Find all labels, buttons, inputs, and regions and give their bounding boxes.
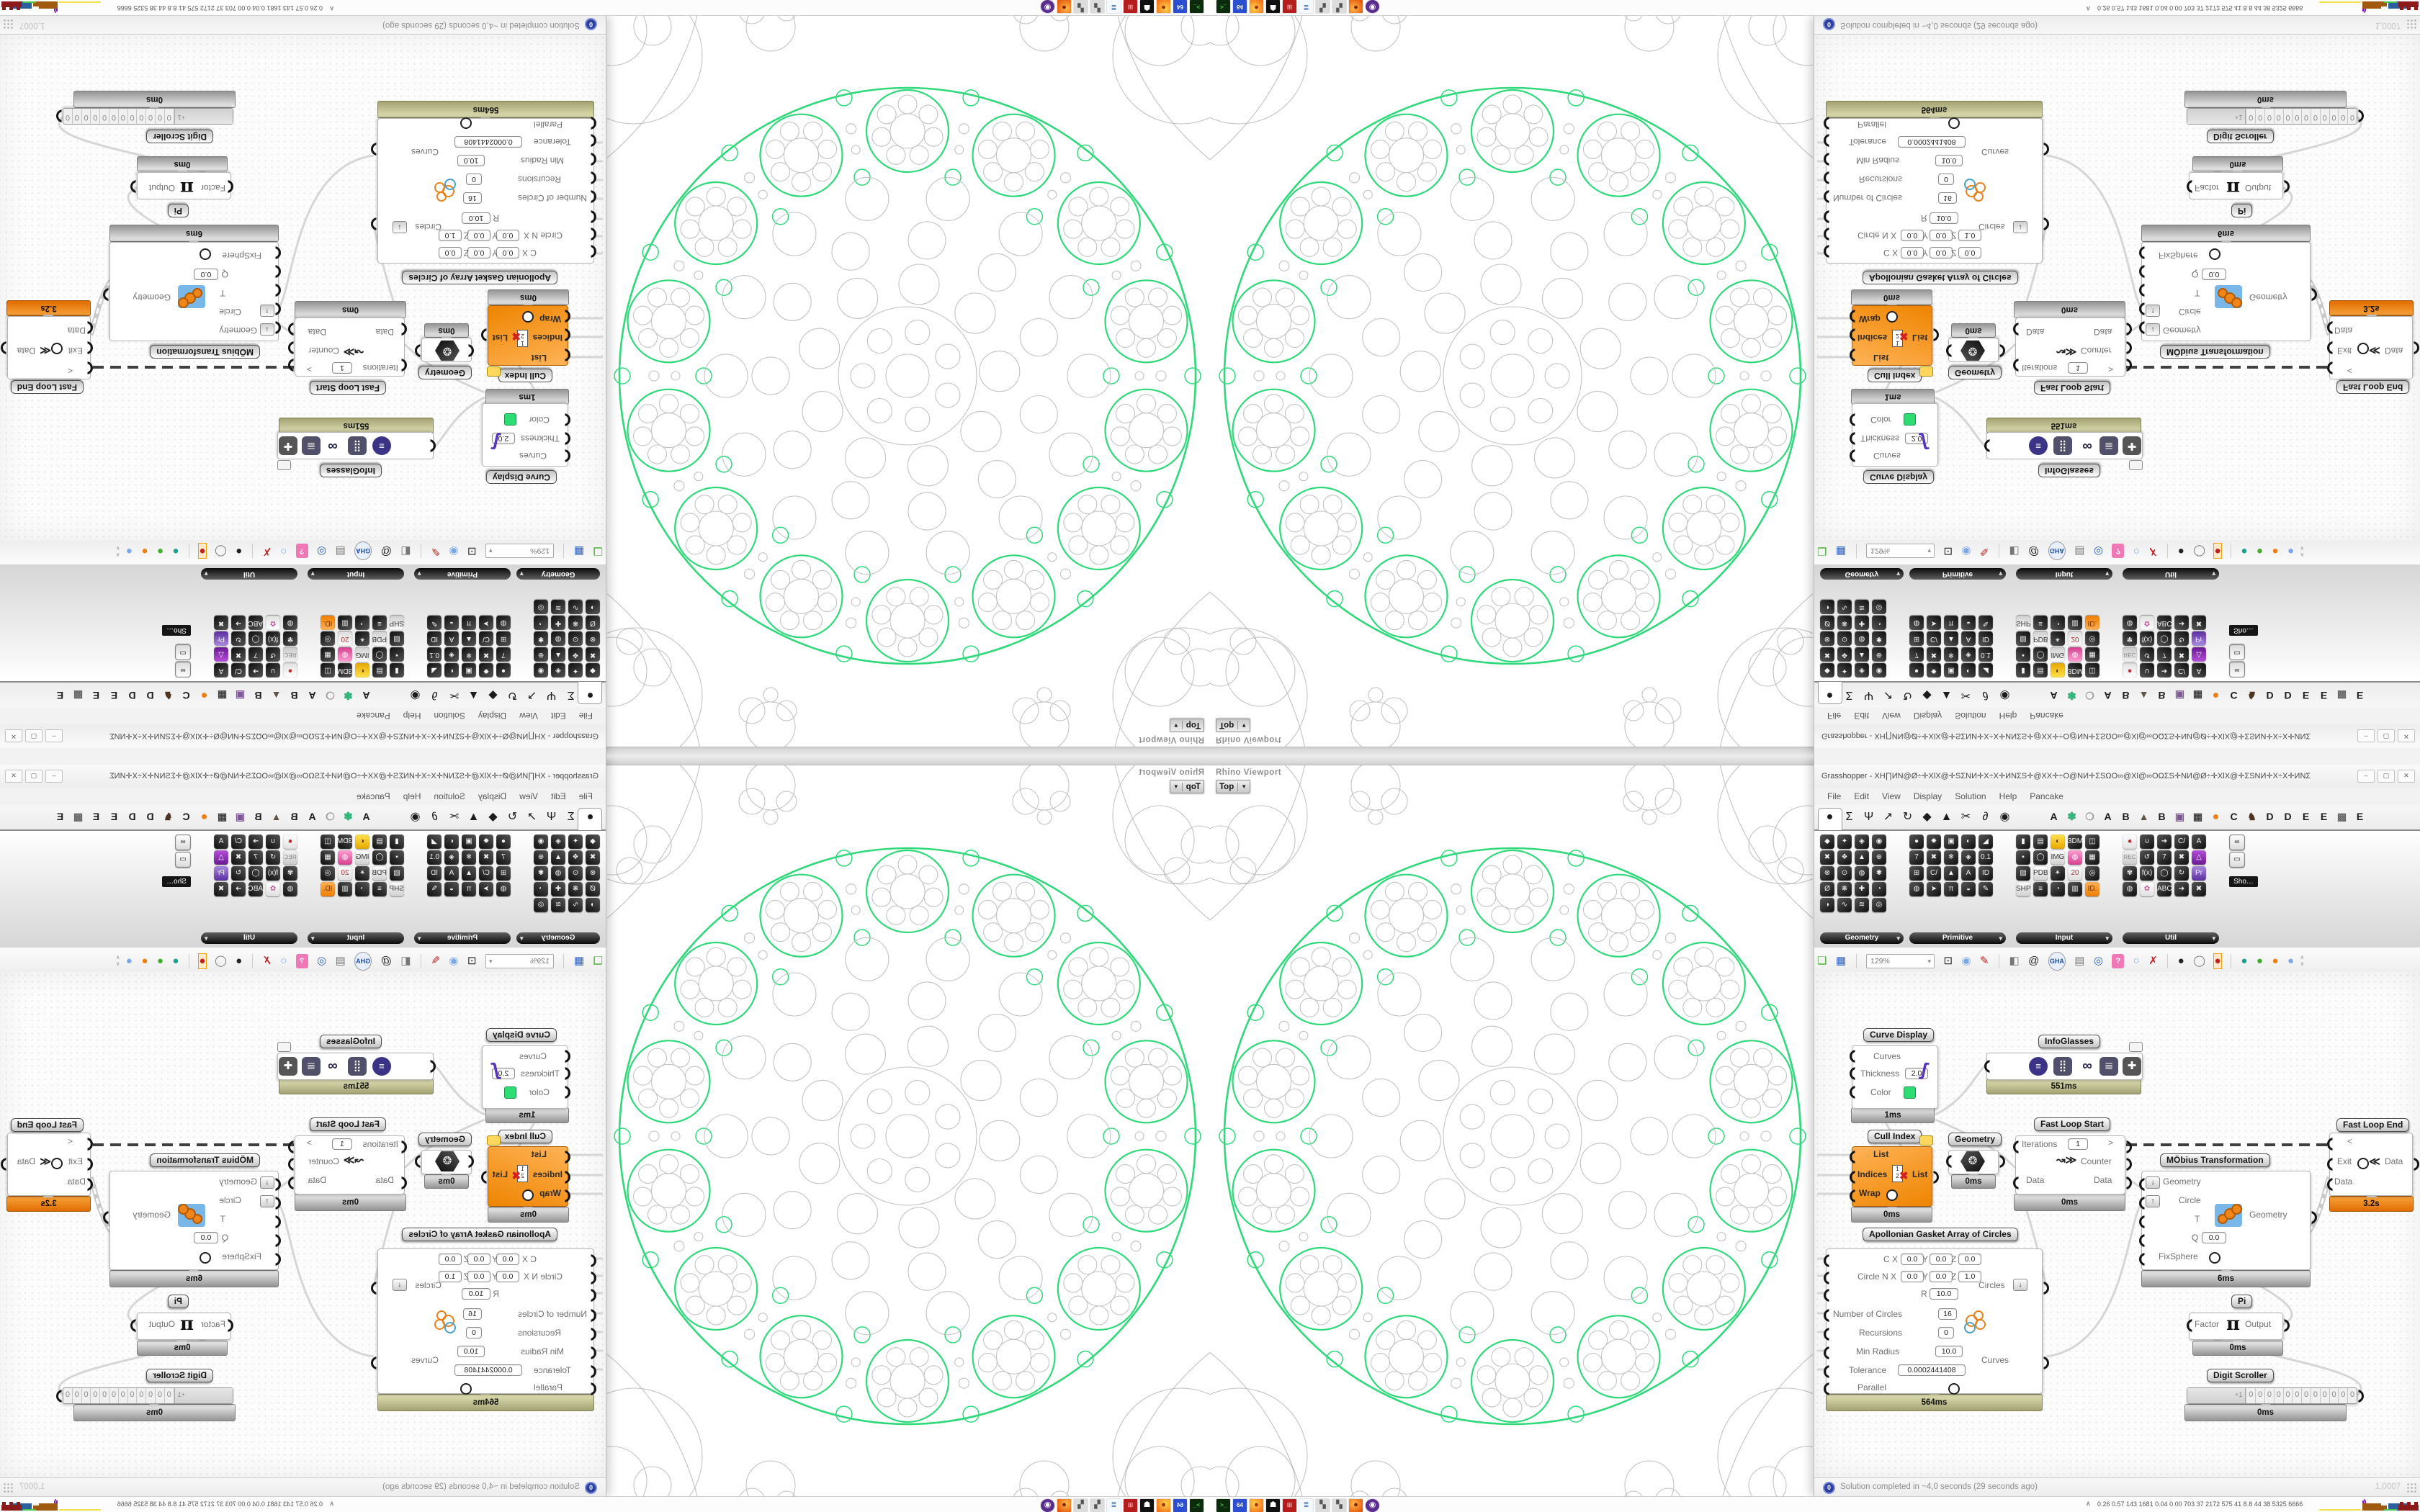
port-out[interactable] bbox=[2356, 111, 2363, 122]
min-radius-value[interactable]: 10.0 bbox=[457, 155, 485, 166]
port-out[interactable] bbox=[372, 219, 379, 230]
save-file-button[interactable]: ▦ bbox=[1836, 544, 1846, 558]
palette-group-label[interactable]: Primitive bbox=[414, 568, 511, 580]
preview-wire-button[interactable]: ◯ bbox=[2193, 544, 2205, 558]
component-icon[interactable]: ↻ bbox=[2174, 631, 2189, 646]
component-icon[interactable]: ▲ bbox=[1944, 631, 1958, 646]
tab-addon[interactable]: A bbox=[359, 811, 374, 822]
tab-icon[interactable]: ◉ bbox=[1995, 688, 2015, 703]
tab-icon[interactable]: ↗ bbox=[1878, 809, 1898, 824]
group-balloon-blue[interactable]: ● bbox=[126, 954, 133, 968]
component-icon[interactable]: ✖ bbox=[2174, 647, 2189, 662]
menu-item[interactable]: Help bbox=[1999, 707, 2017, 724]
infoglasses-grid-icon[interactable]: ⣿ bbox=[2053, 1057, 2072, 1076]
component-icon[interactable]: ◎ bbox=[1872, 600, 1886, 614]
component-icon[interactable]: π bbox=[1944, 616, 1958, 630]
group-balloon-green[interactable]: ● bbox=[157, 544, 163, 558]
port-in[interactable] bbox=[276, 1178, 283, 1189]
tab-addon[interactable]: A bbox=[305, 811, 320, 822]
q-value[interactable]: 0.0 bbox=[2202, 269, 2226, 280]
tab-addon[interactable]: ▣ bbox=[233, 811, 248, 823]
n-y[interactable]: 0.0 bbox=[467, 1271, 490, 1282]
menu-item[interactable]: Help bbox=[403, 707, 421, 724]
component-icon[interactable]: ❋ bbox=[1837, 616, 1852, 630]
component-icon[interactable]: ✚ bbox=[1855, 616, 1869, 630]
balloon-button[interactable]: ○ bbox=[2133, 954, 2140, 968]
component-icon[interactable]: SHP bbox=[390, 882, 404, 896]
component-icon[interactable]: ▲ bbox=[462, 631, 476, 646]
component-icon[interactable]: ▮ bbox=[2016, 834, 2030, 849]
port-in[interactable] bbox=[1821, 1254, 1829, 1266]
fixsphere-toggle[interactable] bbox=[200, 248, 211, 260]
tab-icon[interactable]: ↻ bbox=[503, 809, 522, 824]
port-in[interactable] bbox=[2137, 1197, 2144, 1208]
tab-icon[interactable]: Σ bbox=[1839, 811, 1859, 824]
close-button[interactable]: ✕ bbox=[5, 729, 22, 742]
component-icon[interactable]: ✴ bbox=[355, 631, 369, 646]
open-file-button[interactable]: ❏ bbox=[1817, 544, 1827, 558]
zoom-level-dropdown[interactable]: 129% bbox=[1866, 954, 1935, 968]
infoglasses-goggles-icon[interactable]: ∞ bbox=[323, 1057, 342, 1076]
component-icon[interactable]: A bbox=[1961, 631, 1976, 646]
component-icon[interactable]: ✚ bbox=[1855, 882, 1869, 896]
node-infoglasses[interactable]: ≡ ⣿ ∞ ≣ ✚ bbox=[1986, 432, 2143, 459]
port-in[interactable] bbox=[276, 266, 283, 278]
zoom-extents-button[interactable]: ⊡ bbox=[467, 544, 477, 558]
parallel-toggle[interactable] bbox=[460, 117, 472, 129]
rhino-viewport[interactable]: .gg{fill:none;stroke:#c3c3c3;stroke-widt… bbox=[1210, 765, 1813, 1496]
component-icon[interactable]: ✦ bbox=[568, 663, 583, 678]
component-icon[interactable]: ✱ bbox=[534, 631, 548, 646]
wrap-toggle[interactable] bbox=[1886, 311, 1898, 323]
component-icon[interactable]: ▮ bbox=[390, 663, 404, 678]
digit-cell[interactable]: 0 bbox=[2301, 1388, 2311, 1403]
component-icon[interactable]: ◈ bbox=[1855, 663, 1869, 678]
r-value[interactable]: 10.0 bbox=[462, 212, 490, 224]
digit-cell[interactable]: 0 bbox=[2311, 1388, 2320, 1403]
exit-toggle[interactable] bbox=[51, 343, 63, 354]
fixsphere-toggle[interactable] bbox=[2209, 248, 2220, 260]
infoglasses-puzzle-icon[interactable]: ✚ bbox=[2123, 436, 2141, 455]
component-icon[interactable]: ▪ bbox=[2016, 647, 2030, 662]
tab-addon[interactable]: ▩ bbox=[2334, 811, 2349, 823]
component-icon[interactable]: ◔ bbox=[355, 616, 369, 630]
color-swatch[interactable] bbox=[1904, 413, 1916, 426]
component-icon[interactable]: ≡ bbox=[2033, 882, 2048, 896]
component-icon[interactable]: 0.1 bbox=[1978, 850, 1993, 865]
component-icon[interactable]: ⊙ bbox=[568, 631, 583, 646]
digit-cell[interactable]: 0 bbox=[2274, 109, 2283, 124]
tab-addon[interactable]: B bbox=[251, 811, 266, 822]
preview-wire-button[interactable]: ◯ bbox=[215, 954, 227, 968]
menu-item[interactable]: File bbox=[579, 788, 593, 805]
rhino-viewport[interactable]: .gg{fill:none;stroke:#c3c3c3;stroke-widt… bbox=[1210, 16, 1813, 747]
component-icon[interactable]: PDB bbox=[372, 631, 387, 646]
tab-icon[interactable]: Ψ bbox=[1859, 688, 1878, 701]
group-balloon-teal[interactable]: ● bbox=[173, 544, 179, 558]
component-icon[interactable]: ● bbox=[496, 834, 511, 849]
flatten-icon[interactable]: ↓ bbox=[393, 221, 407, 233]
infoglasses-puzzle-icon[interactable]: ✚ bbox=[279, 1057, 297, 1076]
infoglasses-lines-icon[interactable]: ≡ bbox=[372, 1057, 391, 1076]
component-icon[interactable]: ◉ bbox=[534, 663, 548, 678]
port-out[interactable] bbox=[482, 330, 489, 341]
node-label-fast-loop-end[interactable]: Fast Loop End bbox=[2336, 1118, 2409, 1132]
port-in[interactable] bbox=[591, 1272, 599, 1283]
component-icon[interactable]: C/ bbox=[231, 834, 246, 849]
component-icon[interactable]: ◔ bbox=[1872, 882, 1886, 896]
taskbar-terminal-icon[interactable]: >_ bbox=[1189, 1498, 1204, 1512]
component-icon[interactable]: ✚ bbox=[551, 882, 565, 896]
n-x[interactable]: 0.0 bbox=[1901, 230, 1924, 241]
maximize-button[interactable]: ▢ bbox=[25, 729, 42, 742]
tab-addon[interactable]: ✽ bbox=[341, 689, 356, 702]
component-icon[interactable]: ◍ bbox=[2123, 616, 2137, 630]
tab-icon[interactable]: ● bbox=[1820, 811, 1839, 824]
palette-group-label[interactable]: Input bbox=[2016, 568, 2112, 580]
component-icon[interactable]: A bbox=[214, 834, 228, 849]
preview-eye-button[interactable]: ◉ bbox=[449, 954, 458, 968]
preview-off-button[interactable]: ● bbox=[236, 544, 242, 558]
document-button[interactable]: ▤ bbox=[2074, 544, 2084, 558]
node-label-fast-loop-start[interactable]: Fast Loop Start bbox=[310, 381, 386, 395]
taskbar-maze-icon[interactable]: ▚ bbox=[1332, 1498, 1347, 1512]
resize-grip[interactable] bbox=[4, 1482, 14, 1493]
recursions-value[interactable]: 0 bbox=[466, 1327, 482, 1338]
component-icon[interactable]: ➤ bbox=[1927, 882, 1941, 896]
c-y[interactable]: 0.0 bbox=[467, 1254, 490, 1265]
component-icon[interactable]: 20 bbox=[338, 866, 352, 881]
palette-group-label[interactable]: Geometry bbox=[1820, 568, 1904, 580]
node-label-cull-index[interactable]: Cull Index bbox=[498, 1130, 552, 1143]
tab-addon[interactable]: ▣ bbox=[2172, 811, 2187, 823]
exit-toggle[interactable] bbox=[2357, 1158, 2369, 1169]
component-icon[interactable]: Ø bbox=[586, 616, 600, 630]
component-icon[interactable]: ▣ bbox=[462, 834, 476, 849]
close-button[interactable]: ✕ bbox=[2398, 729, 2415, 742]
palette-group-label[interactable]: Sho… bbox=[2229, 625, 2258, 636]
component-icon[interactable]: ID. bbox=[321, 882, 335, 896]
taskbar-maze-icon[interactable]: ▚ bbox=[1332, 0, 1347, 14]
tolerance-value[interactable]: 0.0002441408 bbox=[1898, 136, 1966, 148]
wire-display-button[interactable]: ✗ bbox=[2148, 954, 2158, 968]
node-label-apollonian[interactable]: Apollonian Gasket Array of Circles bbox=[402, 1228, 557, 1241]
digit-cell[interactable]: 0 bbox=[91, 109, 100, 124]
port-in[interactable] bbox=[88, 343, 95, 354]
tab-addon[interactable]: ♞ bbox=[161, 689, 176, 701]
menu-item[interactable]: View bbox=[1882, 788, 1901, 805]
port-out[interactable] bbox=[2124, 1158, 2131, 1169]
zoom-level-dropdown[interactable]: 129% bbox=[485, 544, 554, 558]
group-balloon-blue[interactable]: ● bbox=[2287, 544, 2294, 558]
port-out[interactable] bbox=[416, 346, 423, 357]
exposure-button[interactable]: ◧ bbox=[2009, 544, 2020, 558]
tab-addon[interactable]: ▦ bbox=[2190, 689, 2205, 701]
c-z[interactable]: 0.0 bbox=[1958, 1254, 1981, 1265]
component-icon[interactable]: 20 bbox=[2068, 631, 2082, 646]
port-in[interactable] bbox=[1821, 1289, 1829, 1300]
component-icon[interactable]: ▥ bbox=[2068, 616, 2082, 630]
port-in[interactable] bbox=[591, 192, 599, 203]
node-label-apollonian[interactable]: Apollonian Gasket Array of Circles bbox=[402, 271, 557, 284]
digit-cell[interactable]: 0 bbox=[128, 1388, 138, 1403]
component-icon[interactable]: ◑ bbox=[1820, 898, 1834, 912]
port-out[interactable] bbox=[2124, 1140, 2131, 1152]
menu-item[interactable]: Solution bbox=[434, 788, 465, 805]
port-in[interactable] bbox=[88, 1178, 95, 1189]
menu-item[interactable]: File bbox=[579, 707, 593, 724]
component-icon[interactable]: ◢ bbox=[1978, 834, 1993, 849]
component-icon[interactable]: ▥ bbox=[2068, 882, 2082, 896]
digit-cell[interactable]: 0 bbox=[2292, 1388, 2301, 1403]
component-icon[interactable]: 0.1 bbox=[427, 647, 442, 662]
digit-cell[interactable]: 0 bbox=[2338, 1388, 2347, 1403]
group-balloon-teal[interactable]: ● bbox=[2241, 544, 2247, 558]
tab-addon[interactable]: ● bbox=[197, 811, 212, 824]
component-icon[interactable]: ◫ bbox=[2085, 834, 2099, 849]
taskbar-maze-icon[interactable]: ▚ bbox=[1073, 0, 1088, 14]
taskbar-owl-icon[interactable]: ◉ bbox=[1040, 1498, 1055, 1512]
iterations-value[interactable]: 1 bbox=[332, 362, 352, 374]
component-icon[interactable]: ♠ bbox=[283, 663, 297, 678]
port-in[interactable] bbox=[565, 311, 573, 323]
component-icon[interactable]: ✖ bbox=[1820, 850, 1834, 865]
port-in[interactable] bbox=[591, 246, 599, 258]
component-icon[interactable]: PDB bbox=[2033, 866, 2048, 881]
digit-cell[interactable]: 0 bbox=[2301, 109, 2311, 124]
menu-item[interactable]: Edit bbox=[1854, 788, 1869, 805]
infoglasses-lines-icon[interactable]: ≡ bbox=[2029, 1057, 2048, 1076]
component-icon[interactable]: ▲ bbox=[1944, 866, 1958, 881]
port-in[interactable] bbox=[2325, 1138, 2332, 1149]
component-icon[interactable]: ↺ bbox=[2140, 850, 2154, 865]
node-label-pi[interactable]: Pi bbox=[2231, 204, 2252, 217]
menu-item[interactable]: Edit bbox=[551, 707, 566, 724]
component-icon[interactable]: ▲ bbox=[551, 647, 565, 662]
goggles-icon[interactable]: ∞ bbox=[2229, 662, 2245, 678]
tab-addon[interactable]: E bbox=[2298, 690, 2313, 701]
help-button[interactable]: ? bbox=[296, 954, 308, 968]
component-icon[interactable]: △ bbox=[214, 850, 228, 865]
component-icon[interactable]: ⊞ bbox=[1909, 866, 1924, 881]
sketch-tool-button[interactable]: ✎ bbox=[431, 954, 440, 968]
component-icon[interactable]: ✸ bbox=[479, 663, 493, 678]
component-icon[interactable]: ✿ bbox=[2140, 616, 2154, 630]
digit-cell[interactable]: 0 bbox=[82, 1388, 91, 1403]
c-z[interactable]: 0.0 bbox=[439, 247, 462, 258]
tab-addon[interactable]: B bbox=[287, 690, 302, 701]
port-out[interactable] bbox=[2041, 1282, 2048, 1293]
tab-addon[interactable]: E bbox=[107, 690, 122, 701]
port-in[interactable] bbox=[88, 1158, 95, 1169]
node-digit-scroller[interactable]: +1 000000000000 bbox=[2187, 1387, 2357, 1404]
node-label-moebius[interactable]: MÖbius Transformation bbox=[2160, 345, 2270, 359]
graft-icon[interactable]: ↑ bbox=[2146, 305, 2160, 317]
component-icon[interactable]: ➔ bbox=[231, 616, 246, 630]
component-icon[interactable]: ◐ bbox=[355, 663, 369, 678]
port-out[interactable] bbox=[2411, 343, 2419, 354]
save-file-button[interactable]: ▦ bbox=[574, 544, 584, 558]
tab-addon[interactable]: B bbox=[251, 690, 266, 701]
menu-item[interactable]: Help bbox=[1999, 788, 2017, 805]
component-icon[interactable]: ◍ bbox=[338, 647, 352, 662]
component-icon[interactable]: ◯ bbox=[372, 647, 387, 662]
component-icon[interactable]: A bbox=[444, 866, 459, 881]
node-label-cull-index[interactable]: Cull Index bbox=[1868, 1130, 1922, 1143]
grasshopper-titlebar[interactable]: Grasshopper - XH∏ИN@Ø÷✛XlX@✛SΣNИ✛X÷X✛ИNΣ… bbox=[1814, 724, 2420, 747]
component-icon[interactable]: ◔ bbox=[2051, 616, 2065, 630]
port-in[interactable] bbox=[2137, 1178, 2144, 1189]
port-in[interactable] bbox=[2325, 363, 2332, 374]
save-file-button[interactable]: ▦ bbox=[1836, 954, 1846, 968]
component-icon[interactable]: ↻ bbox=[2174, 866, 2189, 881]
digit-cell[interactable]: 0 bbox=[137, 1388, 146, 1403]
component-icon[interactable]: ∪ bbox=[266, 834, 280, 849]
taskbar-maze-icon[interactable]: ▚ bbox=[1090, 1498, 1105, 1512]
zoom-extents-button[interactable]: ⊡ bbox=[467, 954, 477, 968]
component-icon[interactable]: ◍ bbox=[551, 631, 565, 646]
menu-item[interactable]: Display bbox=[478, 707, 506, 724]
flatten-icon[interactable]: ↓ bbox=[393, 1279, 407, 1291]
component-icon[interactable]: ▨ bbox=[2016, 866, 2030, 881]
port-in[interactable] bbox=[88, 1138, 95, 1149]
port-in[interactable] bbox=[228, 1319, 236, 1331]
palette-group-label[interactable]: Geometry bbox=[1820, 932, 1904, 944]
port-in[interactable] bbox=[565, 1151, 573, 1162]
taskbar-terminal-icon[interactable]: >_ bbox=[1189, 0, 1204, 14]
component-icon[interactable]: ➜ bbox=[248, 663, 263, 678]
c-y[interactable]: 0.0 bbox=[1930, 247, 1953, 258]
taskbar-maze-icon[interactable]: ▚ bbox=[1315, 0, 1330, 14]
tab-icon[interactable]: ▲ bbox=[1937, 688, 1956, 701]
port-in[interactable] bbox=[591, 1382, 599, 1394]
tab-addon[interactable]: ✽ bbox=[341, 810, 356, 823]
wrap-toggle[interactable] bbox=[1886, 1189, 1898, 1201]
port-in[interactable] bbox=[1821, 1328, 1829, 1339]
exposure-button[interactable]: ◧ bbox=[2009, 954, 2020, 968]
help-button[interactable]: ? bbox=[296, 544, 308, 558]
zoom-extents-button[interactable]: ⊡ bbox=[1943, 544, 1953, 558]
tab-icon[interactable]: ✂ bbox=[1956, 688, 1976, 703]
preview-off-button[interactable]: ● bbox=[236, 954, 242, 968]
q-value[interactable]: 0.0 bbox=[194, 1232, 218, 1243]
component-icon[interactable]: ✾ bbox=[283, 866, 297, 881]
component-icon[interactable]: ◆ bbox=[1820, 834, 1834, 849]
node-label-fast-loop-end[interactable]: Fast Loop End bbox=[11, 380, 84, 394]
node-label-infoglasses[interactable]: InfoGlasses bbox=[320, 1035, 382, 1048]
component-icon[interactable]: ◍ bbox=[2068, 647, 2082, 662]
group-balloon-green[interactable]: ● bbox=[157, 954, 163, 968]
tab-icon[interactable]: ◆ bbox=[1917, 688, 1937, 703]
balloon-button[interactable]: ○ bbox=[2133, 544, 2140, 558]
tab-addon[interactable]: C bbox=[179, 690, 194, 701]
component-icon[interactable]: Ø bbox=[1820, 616, 1834, 630]
port-in[interactable] bbox=[1821, 212, 1829, 223]
component-icon[interactable]: ⊗ bbox=[1820, 631, 1834, 646]
component-icon[interactable]: ◍ bbox=[1909, 882, 1924, 896]
menu-item[interactable]: View bbox=[519, 707, 538, 724]
component-icon[interactable]: ▥ bbox=[338, 882, 352, 896]
component-icon[interactable]: ◒ bbox=[1961, 882, 1976, 896]
digit-cell[interactable]: 0 bbox=[2264, 109, 2274, 124]
menu-item[interactable]: Edit bbox=[551, 788, 566, 805]
component-icon[interactable]: ➤ bbox=[479, 616, 493, 630]
goggles-icon[interactable]: ∞ bbox=[2229, 834, 2245, 850]
note-bubble-icon[interactable] bbox=[2129, 460, 2143, 470]
port-in[interactable] bbox=[591, 1309, 599, 1320]
component-icon[interactable]: ABC bbox=[2157, 616, 2172, 630]
port-in[interactable] bbox=[1847, 311, 1855, 323]
component-icon[interactable]: ❖ bbox=[1837, 850, 1852, 865]
tab-icon[interactable]: ● bbox=[581, 811, 600, 824]
component-icon[interactable]: f(x) bbox=[266, 866, 280, 881]
component-icon[interactable]: ◫ bbox=[321, 663, 335, 678]
infoglasses-archive-icon[interactable]: ≣ bbox=[2099, 1057, 2118, 1076]
save-file-button[interactable]: ▦ bbox=[574, 954, 584, 968]
component-icon[interactable]: ● bbox=[496, 663, 511, 678]
taskbar-floppy-icon[interactable]: 64 bbox=[1232, 1498, 1247, 1512]
tab-addon[interactable]: E bbox=[53, 811, 68, 822]
tab-addon[interactable]: ▲ bbox=[269, 811, 284, 822]
port-in[interactable] bbox=[565, 433, 573, 445]
node-label-pi[interactable]: Pi bbox=[168, 1295, 189, 1308]
graft-icon[interactable]: ↑ bbox=[2146, 1195, 2160, 1207]
taskbar-floppy-icon[interactable]: 64 bbox=[1173, 1498, 1188, 1512]
component-icon[interactable]: ❋ bbox=[1837, 882, 1852, 896]
component-icon[interactable]: ◐ bbox=[1961, 834, 1976, 849]
rhino-viewport[interactable]: .gg{fill:none;stroke:#c3c3c3;stroke-widt… bbox=[607, 765, 1210, 1496]
port-in[interactable] bbox=[1847, 415, 1855, 426]
component-icon[interactable]: ▨ bbox=[390, 866, 404, 881]
node-label-apollonian[interactable]: Apollonian Gasket Array of Circles bbox=[1863, 271, 2018, 284]
group-balloon-orange[interactable]: ● bbox=[2272, 544, 2278, 558]
component-icon[interactable]: ➜ bbox=[2157, 663, 2172, 678]
tab-addon[interactable]: ✽ bbox=[2064, 689, 2079, 702]
component-icon[interactable]: ⊗ bbox=[1820, 866, 1834, 881]
component-icon[interactable]: ◈ bbox=[1961, 850, 1976, 865]
component-icon[interactable]: PDB bbox=[372, 866, 387, 881]
taskbar-firefox2-icon[interactable]: ● bbox=[1348, 1498, 1363, 1512]
component-icon[interactable]: 0.1 bbox=[427, 850, 442, 865]
digit-cell[interactable]: 0 bbox=[2264, 1388, 2274, 1403]
port-in[interactable] bbox=[1821, 135, 1829, 147]
component-icon[interactable]: ✖ bbox=[1927, 647, 1941, 662]
q-value[interactable]: 0.0 bbox=[194, 269, 218, 280]
component-icon[interactable]: ◈ bbox=[551, 663, 565, 678]
node-label-curve-display[interactable]: Curve Display bbox=[486, 1028, 557, 1042]
component-icon[interactable]: π bbox=[462, 616, 476, 630]
component-icon[interactable]: ◍ bbox=[1855, 866, 1869, 881]
tab-addon[interactable]: E bbox=[2316, 690, 2331, 701]
component-icon[interactable]: ≋ bbox=[551, 898, 565, 912]
open-file-button[interactable]: ❏ bbox=[593, 544, 603, 558]
port-in[interactable] bbox=[1847, 330, 1855, 341]
digit-cell[interactable]: 0 bbox=[146, 1388, 156, 1403]
infoglasses-goggles-icon[interactable]: ∞ bbox=[323, 436, 342, 455]
port-out[interactable] bbox=[131, 181, 138, 193]
taskbar-red-app-icon[interactable]: ⊞ bbox=[1123, 0, 1138, 14]
component-icon[interactable]: 0.1 bbox=[1978, 647, 1993, 662]
published-objects-button[interactable]: @ bbox=[381, 954, 392, 968]
sketch-tool-button[interactable]: ✎ bbox=[431, 544, 440, 558]
help-button[interactable]: ? bbox=[2112, 544, 2124, 558]
port-in[interactable] bbox=[276, 1253, 283, 1264]
component-icon[interactable]: IMG bbox=[2051, 647, 2065, 662]
component-icon[interactable]: REC bbox=[2123, 850, 2137, 865]
component-icon[interactable]: ❋ bbox=[568, 616, 583, 630]
tab-icon[interactable]: ∂ bbox=[425, 811, 444, 824]
flatten-icon[interactable]: ↓ bbox=[2146, 323, 2160, 336]
